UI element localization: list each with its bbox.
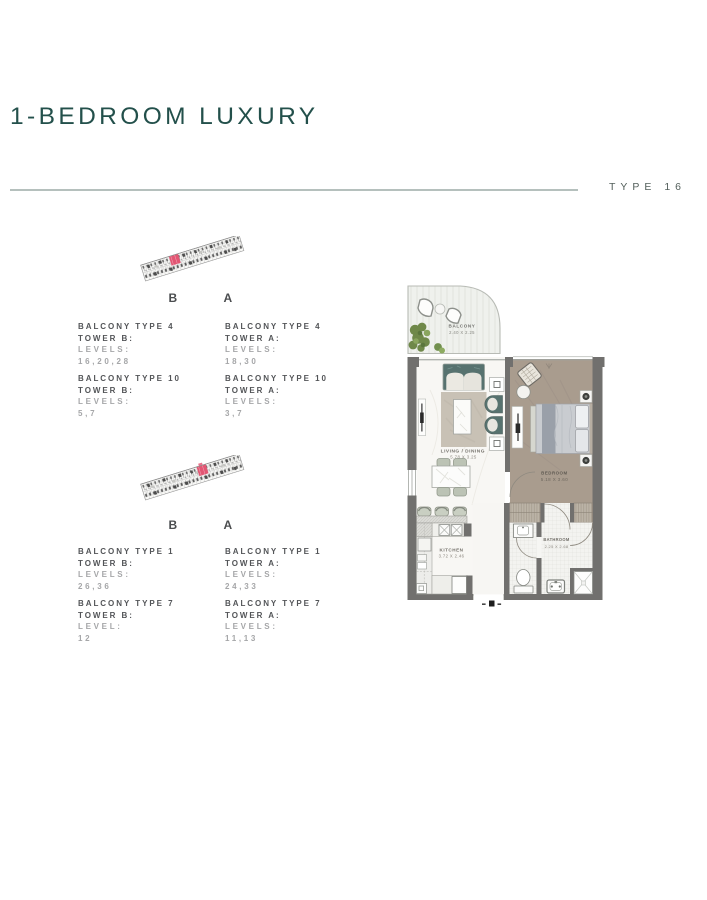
svg-text:KITCHEN: KITCHEN: [440, 548, 464, 553]
svg-text:2.40 X 2.25: 2.40 X 2.25: [449, 330, 475, 335]
svg-text:BALCONY: BALCONY: [449, 324, 476, 329]
svg-text:3.72 X 2.46: 3.72 X 2.46: [439, 554, 465, 559]
svg-text:BATHROOM: BATHROOM: [543, 537, 569, 542]
svg-text:2.25 X 2.68: 2.25 X 2.68: [545, 544, 569, 549]
svg-text:BEDROOM: BEDROOM: [541, 471, 567, 476]
svg-text:5.18 X 3.60: 5.18 X 3.60: [541, 477, 569, 482]
